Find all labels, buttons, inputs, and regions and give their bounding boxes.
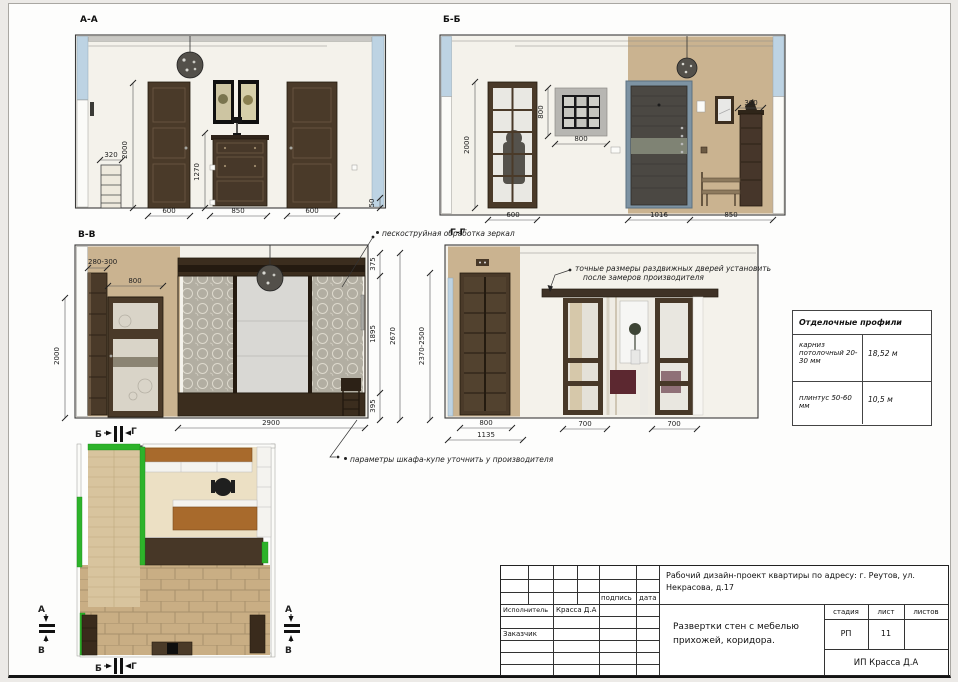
finishing-profiles-table: Отделочные профили карниз потолочный 20-… [792,310,932,426]
sliding-glass-door-left [563,298,603,415]
profile-value: 10,5 м [863,382,931,424]
section-marker-top: Б Г [95,426,137,442]
wood-floor-corridor [88,447,140,607]
svg-text:Б: Б [95,664,102,674]
elevation-aa: А-А [75,10,395,230]
elevation-vv-title: В-В [78,230,96,240]
pelmet-track [542,289,718,297]
shoe-dresser [211,135,269,206]
dim-2000: 2000 [53,295,68,421]
signature-label: подпись [601,594,632,602]
svg-text:2000: 2000 [121,141,129,159]
section-marker-left: А В [38,605,55,656]
wardrobe-plan [145,538,263,565]
svg-text:800: 800 [479,419,492,427]
table-row: плинтус 50-60 мм 10,5 м [793,382,931,424]
svg-text:1135: 1135 [477,431,495,439]
svg-text:Г: Г [131,662,137,672]
doorway-view [603,297,655,415]
wall-cut-right [372,37,384,207]
ladder [101,165,121,208]
svg-text:800: 800 [574,135,587,143]
note-wardrobe-params: параметры шкафа-купе уточнить у производ… [344,455,553,464]
svg-text:320: 320 [104,151,117,159]
project-name: Рабочий дизайн-проект квартиры по адресу… [666,570,942,594]
sliding-wardrobe-door [460,273,510,415]
svg-text:800: 800 [537,105,545,118]
svg-text:395: 395 [369,399,377,412]
svg-text:700: 700 [578,420,591,428]
svg-text:Г: Г [131,427,137,437]
section-marker-right: А В [284,605,300,656]
svg-text:600: 600 [305,207,318,215]
stage-label: стадия [824,608,868,616]
sliding-glass-door-right [655,298,693,415]
dims-right: 375 1895 395 2670 [369,250,403,423]
svg-text:В: В [38,646,45,656]
wall-mirror [715,96,734,124]
leader-dot [376,231,379,234]
entrance-door [626,81,692,208]
sheet-label: лист [868,608,904,616]
svg-text:300: 300 [744,99,757,107]
executor-label: Исполнитель [503,606,548,614]
svg-text:800: 800 [128,277,141,285]
dims-bottom: 800 1135 700 700 [445,419,700,443]
floor-plan: Б Г Б Г А В А В [35,425,315,680]
tall-cabinet [88,273,107,415]
elevation-bb-title: Б-Б [443,15,461,25]
svg-text:2670: 2670 [389,327,397,345]
svg-text:600: 600 [162,207,175,215]
sheet-title: Развертки стен с мебелью прихожей, корид… [673,621,799,648]
svg-text:1270: 1270 [193,163,201,181]
svg-text:Б: Б [95,430,102,440]
interior-door-right [287,82,337,208]
profiles-table-title: Отделочные профили [793,311,931,335]
glass-door [488,82,537,208]
svg-text:2000: 2000 [463,136,471,154]
interior-door-left [148,82,190,208]
svg-text:2000: 2000 [53,347,61,365]
dim-280-300: 280-300 [88,258,117,266]
date-label: дата [639,594,657,602]
dims-bottom: 600 850 600 [145,207,340,219]
sheet-number: 11 [868,629,904,638]
svg-text:850: 850 [231,207,244,215]
stage-value: РП [824,629,868,638]
glass-door [108,297,163,417]
note-sliding-doors: точные размеры раздвижных дверей установ… [575,264,771,282]
svg-text:2370-2500: 2370-2500 [418,327,426,365]
svg-text:В: В [285,646,292,656]
svg-text:1016: 1016 [650,211,668,219]
svg-text:1895: 1895 [369,325,377,343]
art-panel [555,88,607,136]
svg-text:600: 600 [506,211,519,219]
wall-right [271,444,275,657]
executor-name: Красса Д.А [556,606,596,614]
sheets-label: листов [904,608,948,616]
profile-name: карниз потолочный 20-30 мм [793,335,863,381]
svg-text:А: А [38,605,45,615]
elevation-aa-title: А-А [80,15,98,25]
hall-stand [738,99,764,206]
svg-text:850: 850 [724,211,737,219]
svg-text:700: 700 [667,420,680,428]
svg-text:375: 375 [369,257,377,270]
light-switch [697,101,705,112]
profile-name: плинтус 50-60 мм [793,382,863,424]
table-row: карниз потолочный 20-30 мм 18,52 м [793,335,931,382]
svg-text:50: 50 [368,199,376,208]
drawing-page: А-А [0,0,958,682]
profile-value: 18,52 м [863,335,931,381]
leader-dot [344,457,347,460]
elevation-bb: Б-Б 2000 800 800 [435,10,795,234]
client-label: Заказчик [503,630,537,638]
title-block: подпись дата Исполнитель Красса Д.А Зака… [500,565,949,676]
section-marker-bottom: Б Г [95,658,137,674]
office-room [143,447,271,537]
wall-cut-left [77,37,88,100]
svg-text:А: А [285,605,292,615]
company-name: ИП Красса Д.А [824,658,948,668]
dim-2370-2500: 2370-2500 [418,270,433,423]
note-sandblasted-mirrors: пескоструйная обработка зеркал [376,229,515,238]
